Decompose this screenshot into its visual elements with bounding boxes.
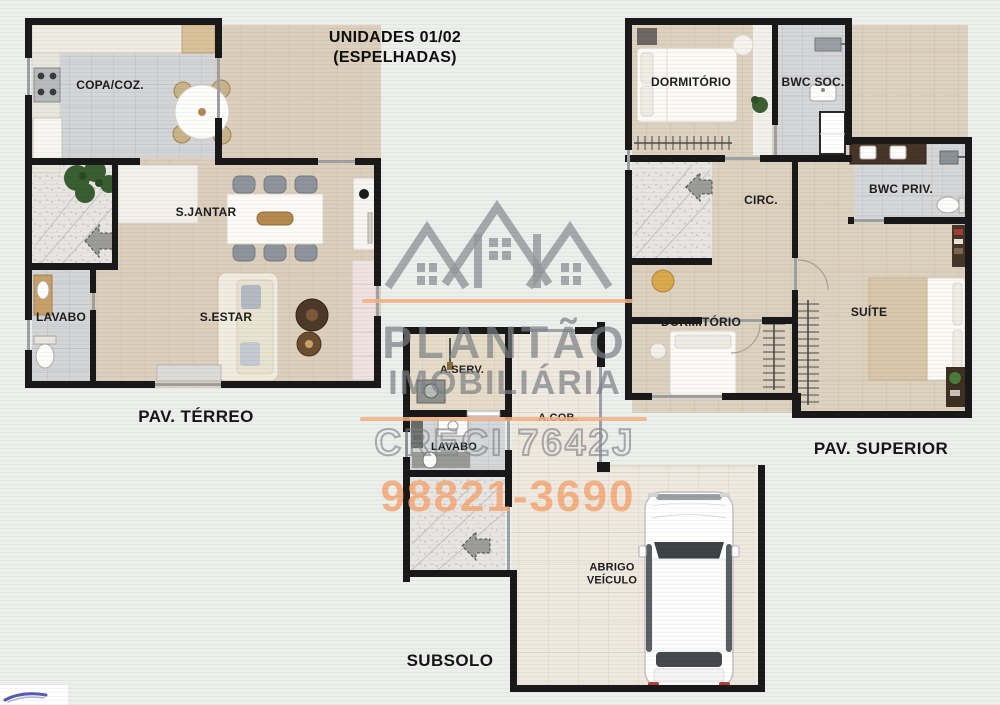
armchair-icon: [652, 270, 674, 292]
room-label-s-estar: S.ESTAR: [200, 310, 253, 324]
room-label-lavabo-subsolo: LAVABO: [431, 441, 477, 453]
room-label-suite: SUÍTE: [851, 305, 887, 319]
caption-subsolo: SUBSOLO: [407, 651, 494, 671]
closet-strip: [753, 25, 772, 155]
tv-cabinet-icon: [952, 225, 965, 267]
room-label-a-serv: A.SERV.: [440, 364, 484, 376]
room-label-lavabo-terreo: LAVABO: [36, 310, 86, 324]
room-label-copa-coz: COPA/COZ.: [76, 78, 144, 92]
sideboard-icon: [352, 260, 376, 380]
bed-icon: [869, 278, 965, 380]
watermark-house-logo: [383, 200, 623, 292]
corner-logo: [0, 685, 68, 705]
room-label-bwc-priv: BWC PRIV.: [869, 182, 933, 196]
shower-icon: [815, 38, 845, 51]
watermark-divider-top: [362, 299, 633, 303]
car-icon: [639, 492, 739, 688]
room-label-abrigo-veiculo: ABRIGO VEÍCULO: [587, 561, 637, 586]
toilet-icon: [937, 197, 965, 213]
shower-box-icon: [820, 112, 845, 154]
cabinet-icon: [33, 118, 62, 163]
room-label-s-jantar: S.JANTAR: [176, 205, 237, 219]
corner-logo-swoosh-icon: [0, 685, 68, 705]
tv-console-icon: [157, 365, 221, 381]
door-leaf: [467, 411, 500, 416]
room-label-dormitorio-2: DORMITÓRIO: [661, 315, 741, 329]
room-label-bwc-soc: BWC SOC.: [782, 75, 845, 89]
desk-icon: [353, 178, 376, 250]
plan-subsolo: [398, 322, 768, 702]
title-line-1: UNIDADES 01/02: [295, 28, 495, 48]
title-line-2: (ESPELHADAS): [295, 48, 495, 68]
floor-plan-image: UNIDADES 01/02 (ESPELHADAS) COPA/COZ. S.…: [0, 0, 1000, 705]
stairs-floor: [410, 477, 505, 570]
sofa-icon: [218, 273, 278, 381]
breakfast-table-icon: [173, 80, 231, 144]
page-title: UNIDADES 01/02 (ESPELHADAS): [295, 28, 495, 68]
bench-plant-icon: [946, 367, 965, 407]
watermark-divider-bottom: [360, 417, 647, 421]
dining-table-icon: [227, 176, 323, 261]
caption-pav-superior: PAV. SUPERIOR: [814, 439, 948, 459]
room-label-circ: CIRC.: [744, 193, 778, 207]
room-label-dormitorio-1: DORMITÓRIO: [651, 75, 731, 89]
caption-pav-terreo: PAV. TÉRREO: [138, 407, 254, 427]
stove-icon: [34, 68, 60, 102]
